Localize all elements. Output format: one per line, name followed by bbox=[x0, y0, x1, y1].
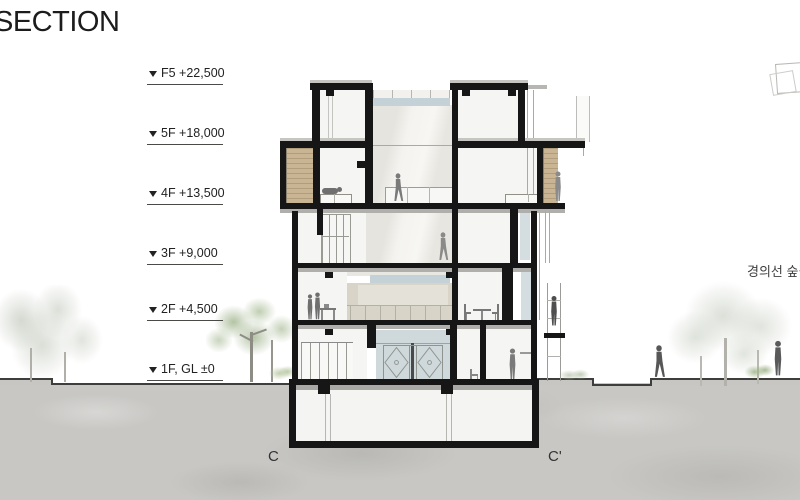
scaffold-post bbox=[560, 283, 561, 381]
level-label-text: 4F +13,500 bbox=[161, 186, 225, 200]
triangle-down-icon bbox=[149, 307, 157, 313]
roof-extension bbox=[528, 85, 547, 89]
level-label: 5F +18,000 bbox=[147, 126, 223, 145]
ground-line-sunken bbox=[592, 384, 652, 386]
basement-line bbox=[330, 394, 331, 441]
bush bbox=[742, 362, 774, 380]
triangle-down-icon bbox=[149, 367, 157, 373]
beam-block bbox=[318, 385, 330, 394]
wall bbox=[452, 83, 458, 323]
bush bbox=[558, 368, 590, 381]
wall-2f-interior bbox=[502, 267, 513, 320]
tree-trunk bbox=[700, 356, 702, 386]
room-1f-right bbox=[457, 328, 531, 380]
level-label: 1F, GL ±0 bbox=[147, 362, 223, 381]
table-leg bbox=[321, 310, 323, 320]
bed-line bbox=[334, 194, 335, 203]
door-frame bbox=[442, 345, 443, 380]
table-leg bbox=[333, 310, 335, 320]
roof-slab-right bbox=[450, 83, 528, 90]
door-frame bbox=[409, 345, 410, 380]
door-frame-line bbox=[328, 90, 329, 141]
section-drawing-canvas: SECTION F5 +22,500 5F +18,000 4F +13,500… bbox=[0, 0, 800, 500]
room-3f-right bbox=[458, 211, 510, 263]
person-figure bbox=[771, 336, 785, 382]
skylight-glazing bbox=[373, 98, 450, 106]
door-diamond-pattern bbox=[417, 346, 442, 379]
counter-line bbox=[407, 187, 408, 203]
section-marker-start: C bbox=[268, 448, 279, 465]
triangle-down-icon bbox=[149, 251, 157, 257]
level-label: 3F +9,000 bbox=[147, 246, 223, 265]
door-diamond-pattern bbox=[384, 346, 409, 379]
basement-interior bbox=[296, 385, 532, 441]
beam-block bbox=[441, 385, 453, 394]
triangle-down-icon bbox=[149, 191, 157, 197]
basement-topping bbox=[296, 385, 532, 390]
level-label-text: 3F +9,000 bbox=[161, 246, 218, 260]
floor-slab-5f-canopy bbox=[452, 141, 585, 148]
rail-line bbox=[545, 211, 546, 263]
back-floor-edge-line bbox=[373, 145, 452, 146]
wall-door-header bbox=[367, 323, 376, 348]
tree-trunk bbox=[64, 352, 66, 382]
level-label: 4F +13,500 bbox=[147, 186, 223, 205]
wall-1f bbox=[450, 323, 457, 381]
beam-block bbox=[325, 272, 333, 278]
section-marker-end: C' bbox=[548, 448, 562, 465]
wood-panel-left-wing bbox=[286, 148, 313, 203]
door-mullion bbox=[411, 343, 414, 380]
person-lying-head bbox=[337, 187, 342, 192]
beam-block bbox=[325, 329, 333, 335]
wall-nib bbox=[357, 161, 366, 168]
person-figure bbox=[436, 232, 450, 262]
person-figure bbox=[506, 348, 519, 381]
page-title: SECTION bbox=[0, 6, 119, 39]
floor-slab-5f bbox=[280, 141, 373, 148]
basement-line bbox=[446, 394, 447, 441]
mullion-line bbox=[527, 90, 528, 141]
level-label-text: 2F +4,500 bbox=[161, 302, 218, 316]
skylight-structure bbox=[373, 90, 450, 98]
wall-stub-3f bbox=[317, 203, 323, 235]
wall-1f-interior bbox=[480, 325, 486, 381]
wall bbox=[365, 83, 373, 203]
counter-line bbox=[429, 187, 430, 203]
level-label-text: F5 +22,500 bbox=[161, 66, 225, 80]
person-figure bbox=[391, 173, 405, 203]
room-5f-left bbox=[320, 90, 365, 141]
beam-block bbox=[508, 90, 516, 96]
flue-shaft bbox=[576, 96, 590, 142]
person-lying bbox=[322, 188, 338, 194]
room-5f-right bbox=[458, 90, 518, 141]
level-label: 2F +4,500 bbox=[147, 302, 223, 321]
wall-outer-left bbox=[292, 211, 298, 381]
rail-line bbox=[549, 211, 550, 263]
person-figure bbox=[548, 289, 560, 334]
fascia-line bbox=[539, 205, 540, 320]
wardrobe-shelf-line bbox=[321, 236, 349, 237]
wall-shelf bbox=[520, 352, 531, 354]
tree-trunk bbox=[724, 338, 727, 386]
door-frame-line bbox=[332, 90, 333, 141]
person-figure bbox=[552, 171, 564, 203]
wall bbox=[518, 83, 525, 141]
table-item bbox=[324, 304, 329, 308]
wardrobe-3f bbox=[321, 214, 351, 265]
tree-trunk bbox=[30, 348, 32, 382]
site-annotation: 경의선 숲길 bbox=[747, 261, 800, 280]
hall-screen bbox=[358, 285, 448, 306]
level-label-text: 1F, GL ±0 bbox=[161, 362, 215, 376]
canopy-support-line bbox=[583, 148, 584, 156]
triangle-down-icon bbox=[149, 131, 157, 137]
mullion-line bbox=[533, 90, 534, 141]
tree-faint-left bbox=[0, 285, 105, 385]
basement-line bbox=[325, 394, 326, 441]
triangle-down-icon bbox=[149, 71, 157, 77]
wall bbox=[312, 83, 320, 203]
scaffold-rung bbox=[547, 356, 561, 357]
wall-outer-right bbox=[531, 211, 537, 381]
hall-storefront-mullions bbox=[350, 306, 450, 320]
level-label-text: 5F +18,000 bbox=[161, 126, 225, 140]
key-plan-icon bbox=[769, 70, 796, 96]
lightwell-glazing-3f bbox=[520, 212, 530, 260]
person-figure bbox=[651, 342, 667, 382]
beam-block bbox=[462, 90, 470, 96]
bed-line bbox=[528, 194, 529, 202]
shelving-1f bbox=[301, 342, 353, 381]
basement-line bbox=[451, 394, 452, 441]
level-label: F5 +22,500 bbox=[147, 66, 223, 85]
lightwell-glazing-2f bbox=[521, 271, 531, 320]
wall-3f-interior bbox=[510, 203, 518, 263]
beam-block bbox=[326, 90, 334, 96]
